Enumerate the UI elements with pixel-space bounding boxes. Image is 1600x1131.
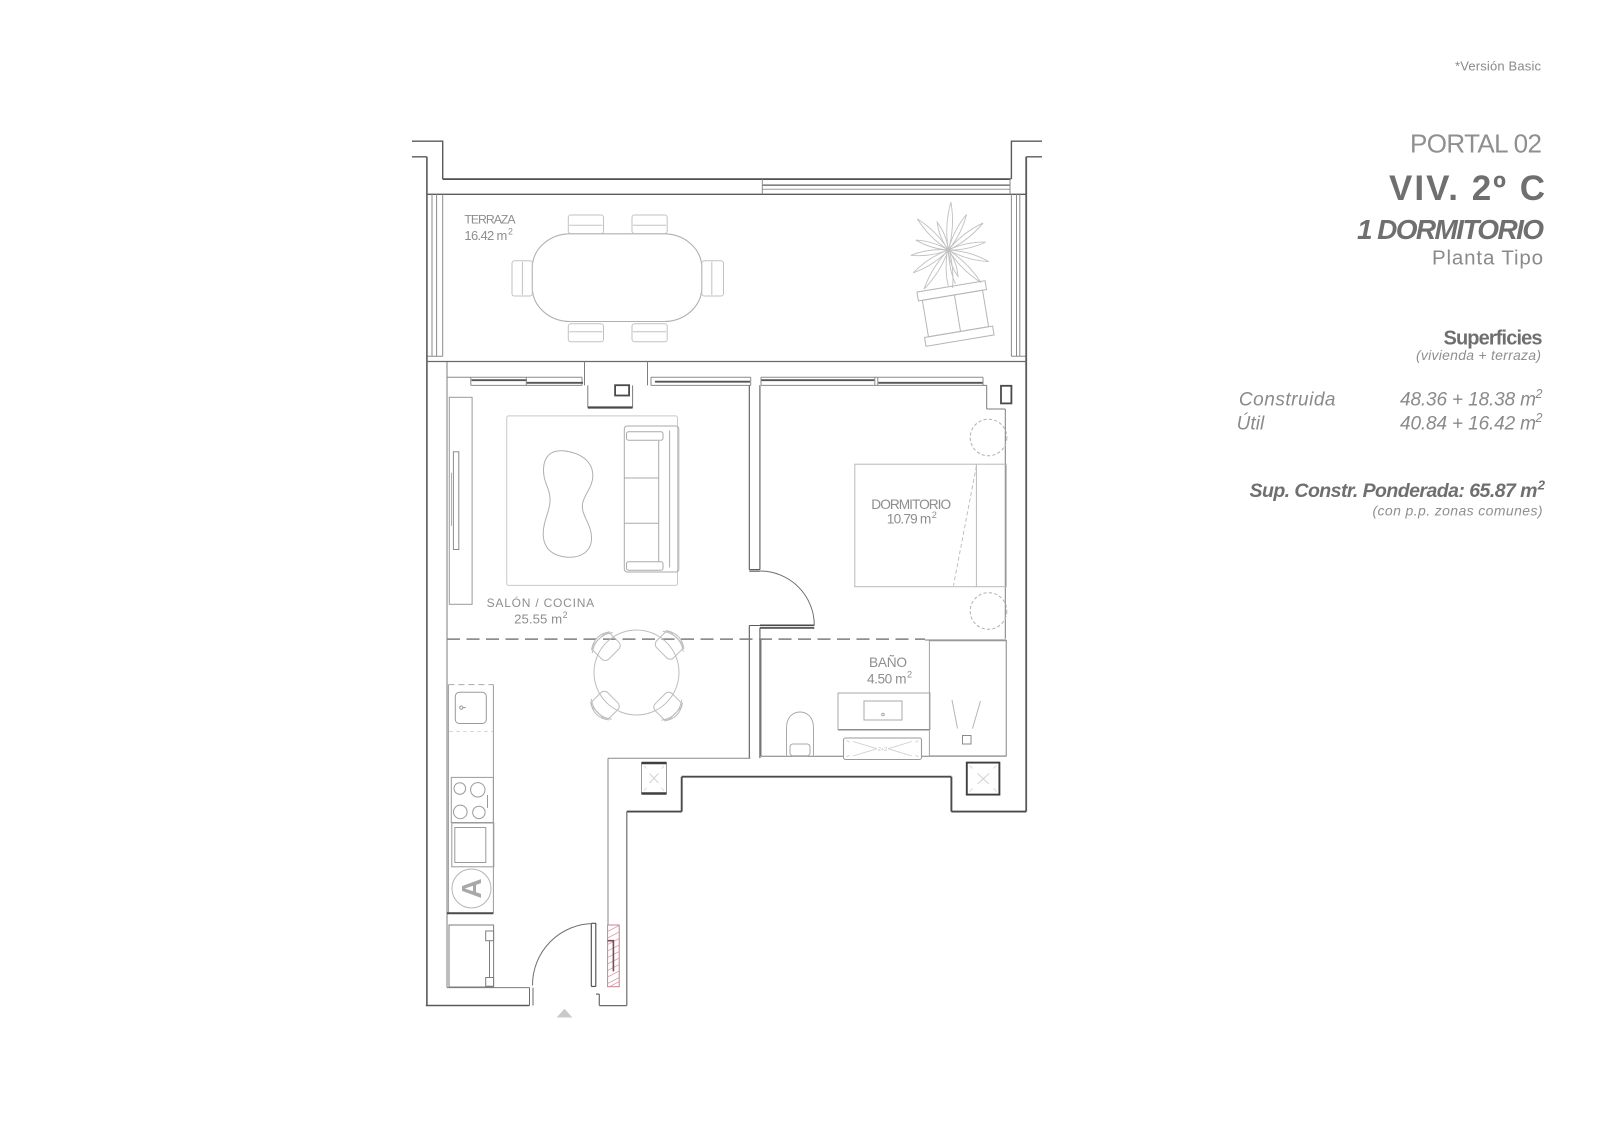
svg-text:Planta Tipo: Planta Tipo: [1432, 246, 1543, 269]
svg-text:SALÓN / COCINA: SALÓN / COCINA: [487, 595, 595, 610]
svg-text:48.36 + 18.38 m: 48.36 + 18.38 m: [1400, 390, 1536, 411]
svg-text:2+2: 2+2: [878, 747, 887, 753]
svg-text:4.50 m: 4.50 m: [867, 671, 907, 686]
svg-text:*Versión Basic: *Versión Basic: [1455, 59, 1542, 74]
svg-text:16.42 m: 16.42 m: [464, 228, 507, 243]
svg-text:BAÑO: BAÑO: [869, 655, 907, 670]
svg-text:Útil: Útil: [1237, 413, 1265, 435]
svg-text:2: 2: [1535, 387, 1543, 401]
svg-text:TERRAZA: TERRAZA: [464, 213, 516, 227]
svg-text:Construida: Construida: [1239, 390, 1336, 411]
svg-text:VIV. 2º C: VIV. 2º C: [1389, 169, 1545, 208]
svg-text:Sup. Constr. Ponderada: 65.87: Sup. Constr. Ponderada: 65.87 m: [1250, 480, 1538, 502]
svg-text:DORMITORIO: DORMITORIO: [871, 497, 951, 512]
svg-text:25.55 m: 25.55 m: [514, 612, 562, 627]
svg-text:40.84 + 16.42 m: 40.84 + 16.42 m: [1400, 414, 1536, 435]
svg-text:2: 2: [508, 227, 513, 237]
svg-text:2: 2: [563, 610, 568, 620]
svg-text:10.79 m: 10.79 m: [887, 512, 932, 527]
svg-text:(vivienda + terraza): (vivienda + terraza): [1416, 347, 1541, 363]
svg-text:(con p.p. zonas comunes): (con p.p. zonas comunes): [1373, 503, 1543, 519]
svg-text:2: 2: [907, 670, 912, 680]
svg-text:A: A: [456, 878, 487, 898]
svg-text:2: 2: [932, 510, 937, 520]
svg-text:1 DORMITORIO: 1 DORMITORIO: [1357, 214, 1544, 245]
svg-text:2: 2: [1537, 478, 1546, 493]
svg-text:PORTAL 02: PORTAL 02: [1410, 129, 1542, 159]
svg-text:2: 2: [1535, 411, 1543, 425]
